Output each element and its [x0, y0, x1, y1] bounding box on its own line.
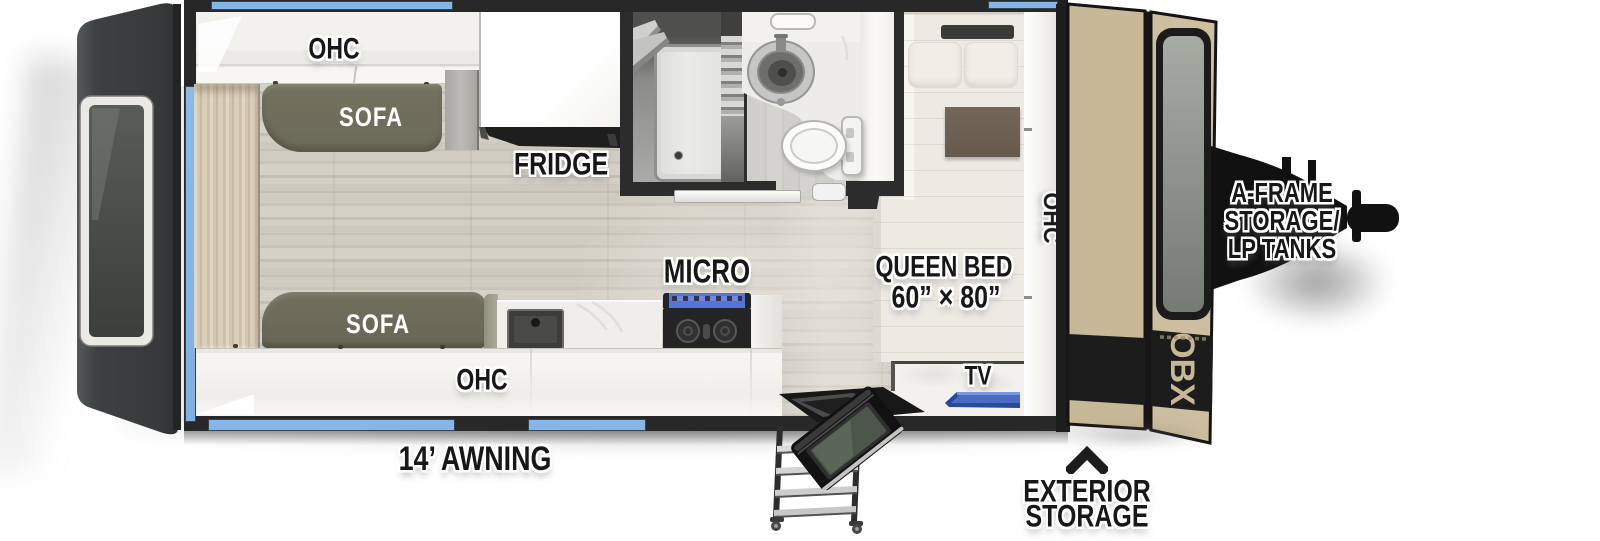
svg-text:OBX: OBX [1163, 332, 1201, 406]
